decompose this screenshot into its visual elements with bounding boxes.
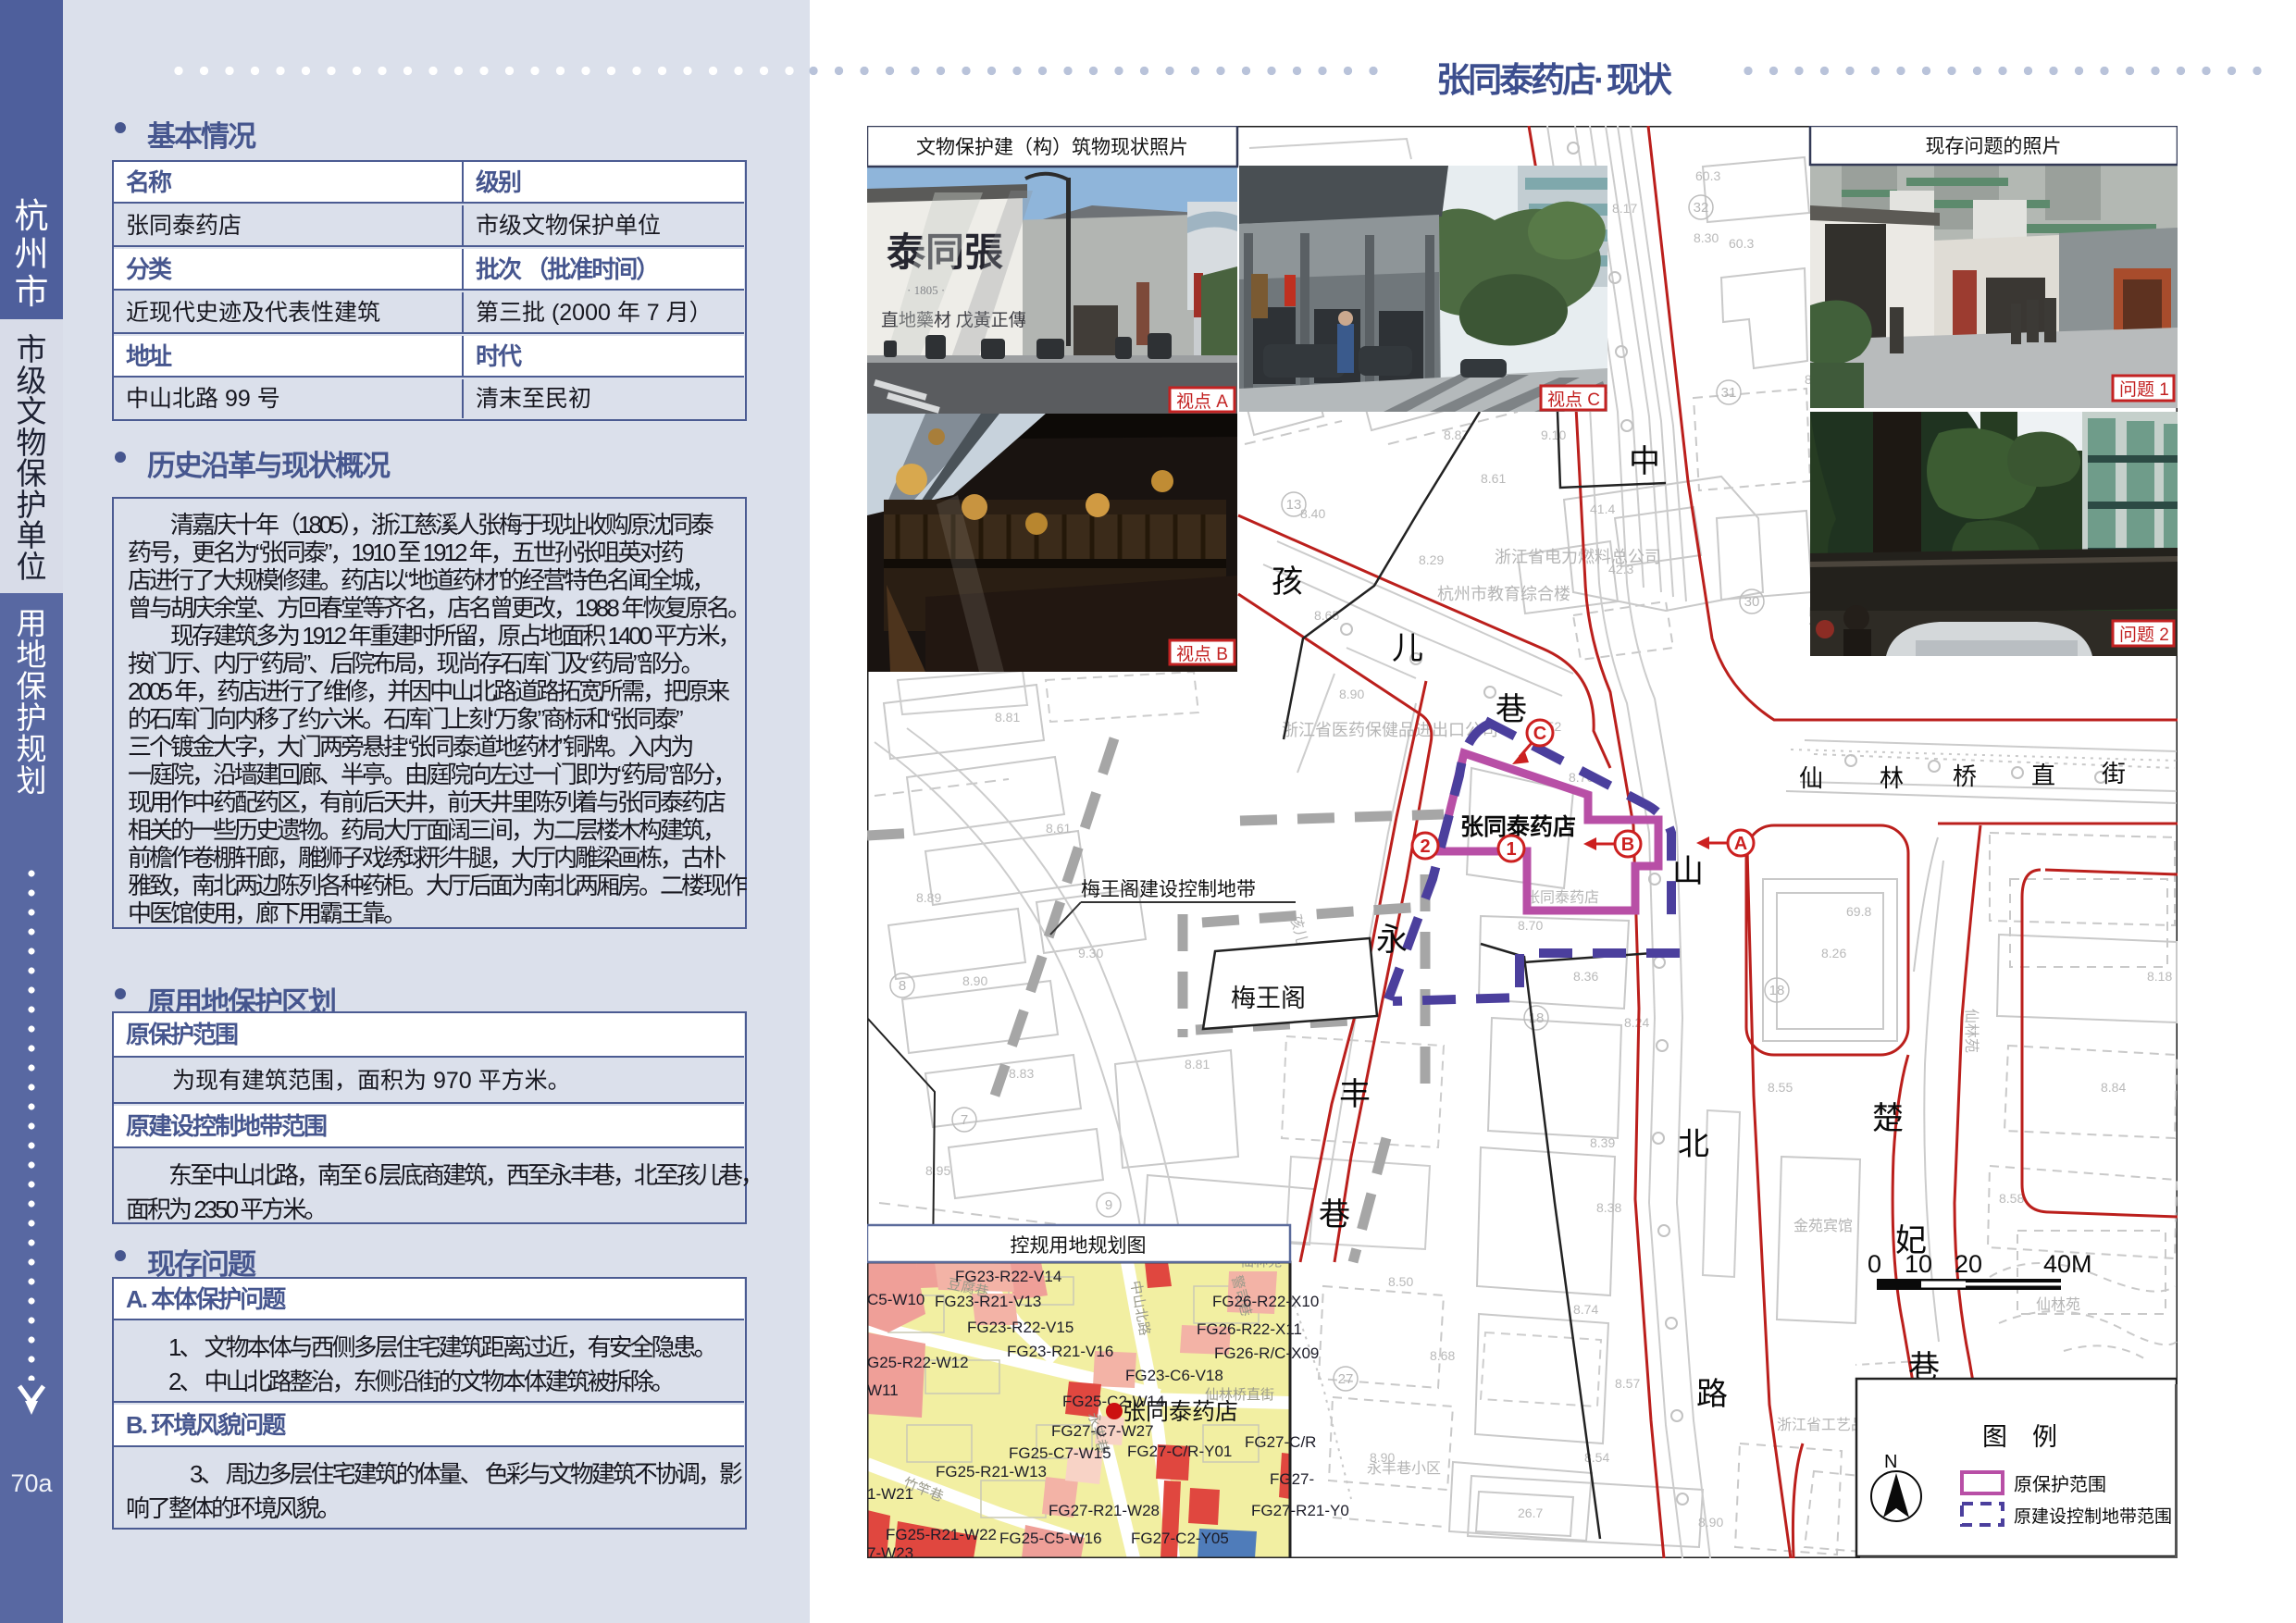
svg-text:问题 1: 问题 1: [2119, 379, 2169, 400]
svg-text:31: 31: [1721, 385, 1737, 401]
svg-text:图 例: 图 例: [1982, 1423, 2057, 1451]
svg-text:FG25-C5-W16: FG25-C5-W16: [999, 1530, 1102, 1547]
svg-text:仙林苑: 仙林苑: [1963, 1009, 1980, 1053]
svg-text:问题 2: 问题 2: [2119, 625, 2169, 645]
svg-text:直: 直: [2031, 762, 2055, 789]
svg-text:楚: 楚: [1872, 1101, 1904, 1136]
svg-text:8.74: 8.74: [1573, 1302, 1598, 1317]
svg-text:街: 街: [2102, 760, 2126, 787]
svg-text:B: B: [1621, 835, 1634, 855]
svg-text:文物保护建（构）筑物现状照片: 文物保护建（构）筑物现状照片: [916, 137, 1188, 158]
svg-text:8.38: 8.38: [1596, 1200, 1621, 1215]
svg-text:FG27-C/R-Y01: FG27-C/R-Y01: [1127, 1443, 1232, 1460]
svg-text:浙江省医药保健品进出口公司: 浙江省医药保健品进出口公司: [1282, 721, 1498, 739]
svg-text:9: 9: [1105, 1197, 1112, 1213]
svg-text:控规用地规划图: 控规用地规划图: [1011, 1235, 1147, 1257]
svg-text:FG23-R21-V16: FG23-R21-V16: [1007, 1343, 1113, 1360]
svg-text:8.81: 8.81: [995, 710, 1020, 725]
svg-text:8: 8: [899, 978, 906, 994]
svg-text:W11: W11: [867, 1381, 899, 1399]
svg-text:8.61: 8.61: [1046, 821, 1071, 836]
svg-text:30: 30: [1744, 594, 1760, 610]
svg-text:张同泰药店: 张同泰药店: [1525, 889, 1599, 906]
svg-text:60.3: 60.3: [1695, 168, 1720, 183]
svg-text:梅王阁建设控制地带: 梅王阁建设控制地带: [1081, 879, 1256, 900]
svg-text:孩: 孩: [1272, 564, 1303, 600]
svg-text:金苑宾馆: 金苑宾馆: [1793, 1218, 1853, 1234]
svg-text:8.90: 8.90: [962, 973, 987, 988]
svg-text:浙江省电力燃料总公司: 浙江省电力燃料总公司: [1495, 548, 1661, 566]
svg-text:8.95: 8.95: [925, 1163, 950, 1178]
svg-text:8.90: 8.90: [1698, 1515, 1723, 1530]
svg-text:0: 0: [1868, 1250, 1881, 1278]
svg-text:18: 18: [1769, 983, 1785, 998]
svg-text:2: 2: [1420, 836, 1430, 857]
svg-text:仙: 仙: [1799, 764, 1823, 792]
svg-text:视点 A: 视点 A: [1176, 391, 1228, 412]
svg-text:8.68: 8.68: [1430, 1348, 1455, 1363]
svg-text:永: 永: [1376, 923, 1408, 958]
svg-text:视点 B: 视点 B: [1176, 644, 1228, 664]
svg-text:原保护范围: 原保护范围: [2014, 1474, 2106, 1495]
svg-text:梅王阁: 梅王阁: [1231, 985, 1306, 1012]
svg-text:20: 20: [1955, 1250, 1982, 1278]
svg-text:60.3: 60.3: [1729, 236, 1754, 251]
svg-text:FG26-R22-X11: FG26-R22-X11: [1197, 1320, 1302, 1338]
svg-text:8.83: 8.83: [1009, 1066, 1034, 1081]
svg-text:山: 山: [1672, 854, 1704, 889]
svg-text:8.89: 8.89: [916, 890, 941, 905]
svg-text:26.7: 26.7: [1518, 1505, 1543, 1520]
svg-text:视点 C: 视点 C: [1547, 390, 1600, 410]
svg-text:中: 中: [1629, 444, 1660, 479]
svg-text:7-W23: 7-W23: [867, 1544, 913, 1558]
svg-text:G25-R22-W12: G25-R22-W12: [867, 1354, 969, 1371]
svg-text:C5-W10: C5-W10: [867, 1291, 925, 1308]
svg-text:10: 10: [1905, 1250, 1932, 1278]
svg-text:FG27-R21-W28: FG27-R21-W28: [1049, 1502, 1160, 1519]
svg-text:原建设控制地带范围: 原建设控制地带范围: [2014, 1506, 2172, 1527]
svg-text:巷: 巷: [1496, 692, 1527, 727]
svg-text:8.17: 8.17: [1612, 201, 1637, 216]
svg-text:FG23-R22-V14: FG23-R22-V14: [955, 1268, 1061, 1285]
svg-text:8.70: 8.70: [1518, 918, 1543, 933]
svg-text:8.40: 8.40: [1300, 506, 1325, 521]
svg-text:41.4: 41.4: [1590, 502, 1615, 516]
svg-text:桥: 桥: [1953, 762, 1977, 790]
svg-text:永丰巷小区: 永丰巷小区: [1367, 1460, 1441, 1477]
svg-text:现存问题的照片: 现存问题的照片: [1926, 136, 2062, 157]
svg-text:8.57: 8.57: [1615, 1376, 1640, 1391]
svg-text:FG23-C6-V18: FG23-C6-V18: [1125, 1367, 1223, 1384]
svg-text:林: 林: [1880, 764, 1904, 792]
svg-text:8.50: 8.50: [1388, 1274, 1413, 1289]
svg-text:FG27-R21-Y0: FG27-R21-Y0: [1251, 1502, 1349, 1519]
svg-text:FG25-C7-W15: FG25-C7-W15: [1009, 1444, 1111, 1462]
svg-text:8.24: 8.24: [1624, 1015, 1649, 1030]
svg-text:仙林苑: 仙林苑: [2036, 1296, 2080, 1313]
svg-text:1-W21: 1-W21: [867, 1485, 913, 1503]
svg-text:北: 北: [1678, 1127, 1709, 1162]
svg-text:路: 路: [1696, 1377, 1728, 1412]
svg-text:8.18: 8.18: [2147, 969, 2172, 984]
svg-text:C: C: [1533, 724, 1546, 744]
svg-text:8.39: 8.39: [1590, 1135, 1615, 1150]
svg-text:丰: 丰: [1339, 1077, 1371, 1112]
svg-text:8.58: 8.58: [1999, 1191, 2024, 1206]
svg-text:8.36: 8.36: [1573, 969, 1598, 984]
svg-text:张同泰药店: 张同泰药店: [1123, 1399, 1238, 1425]
svg-text:8.30: 8.30: [1694, 230, 1719, 245]
svg-text:40M: 40M: [2043, 1250, 2092, 1278]
svg-text:69.8: 69.8: [1846, 904, 1871, 919]
svg-text:FG26-R/C-X09: FG26-R/C-X09: [1214, 1344, 1319, 1362]
svg-text:FG25-R21-W13: FG25-R21-W13: [936, 1463, 1047, 1481]
svg-text:FG25-R21-W22: FG25-R21-W22: [886, 1526, 997, 1543]
svg-text:8.61: 8.61: [1481, 471, 1506, 486]
svg-text:N: N: [1884, 1452, 1897, 1472]
svg-text:杭州市教育综合楼: 杭州市教育综合楼: [1437, 585, 1570, 603]
svg-text:8.90: 8.90: [1339, 687, 1364, 701]
svg-text:1: 1: [1506, 839, 1516, 860]
svg-text:A: A: [1734, 834, 1747, 854]
svg-text:FG27-C/R: FG27-C/R: [1245, 1433, 1316, 1451]
svg-text:9.10: 9.10: [1541, 427, 1566, 442]
svg-text:儿: 儿: [1392, 631, 1423, 666]
svg-text:巷: 巷: [1319, 1197, 1350, 1233]
svg-text:8.29: 8.29: [1419, 552, 1444, 567]
svg-text:FG23-R21-V13: FG23-R21-V13: [935, 1293, 1041, 1310]
svg-text:8.81: 8.81: [1185, 1057, 1210, 1072]
svg-text:FG27-: FG27-: [1270, 1470, 1314, 1488]
svg-text:13: 13: [1286, 497, 1302, 513]
svg-text:9.30: 9.30: [1078, 946, 1103, 960]
svg-text:8.26: 8.26: [1821, 946, 1846, 960]
svg-text:32: 32: [1694, 200, 1709, 216]
svg-text:FG27-C2-Y05: FG27-C2-Y05: [1131, 1530, 1229, 1547]
svg-text:FG26-R22-X10: FG26-R22-X10: [1212, 1293, 1319, 1310]
svg-text:FG23-R22-V15: FG23-R22-V15: [967, 1319, 1074, 1336]
svg-text:7: 7: [961, 1112, 968, 1128]
svg-text:27: 27: [1338, 1371, 1354, 1387]
svg-text:8.55: 8.55: [1768, 1080, 1793, 1095]
svg-text:8.84: 8.84: [2101, 1080, 2126, 1095]
